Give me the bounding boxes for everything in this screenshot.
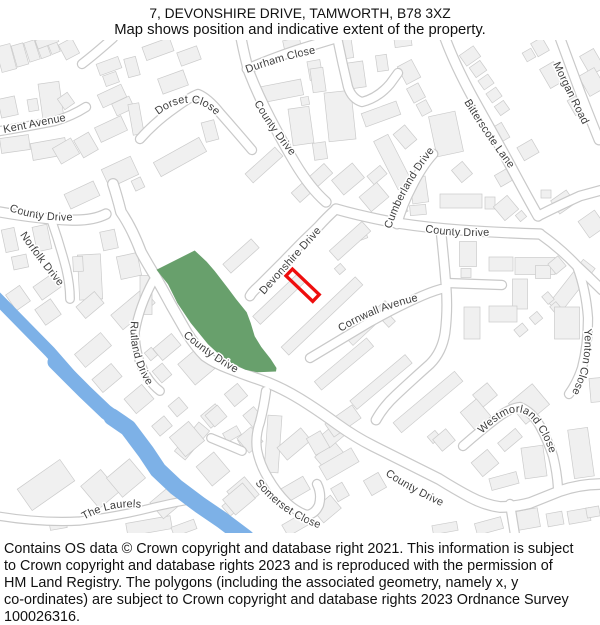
svg-text:Contains OS data © Crown copyr: Contains OS data © Crown copyright and d… [4,541,573,557]
svg-text:HM Land Registry. The polygons: HM Land Registry. The polygons (includin… [4,575,519,591]
svg-text:7, DEVONSHIRE DRIVE, TAMWORTH,: 7, DEVONSHIRE DRIVE, TAMWORTH, B78 3XZ [149,6,450,21]
svg-text:to Crown copyright and databas: to Crown copyright and database rights 2… [4,558,554,574]
svg-text:co-ordinates) are subject to C: co-ordinates) are subject to Crown copyr… [4,592,570,608]
svg-text:100026316.: 100026316. [4,609,80,625]
svg-text:Map shows position and indicat: Map shows position and indicative extent… [114,22,486,38]
